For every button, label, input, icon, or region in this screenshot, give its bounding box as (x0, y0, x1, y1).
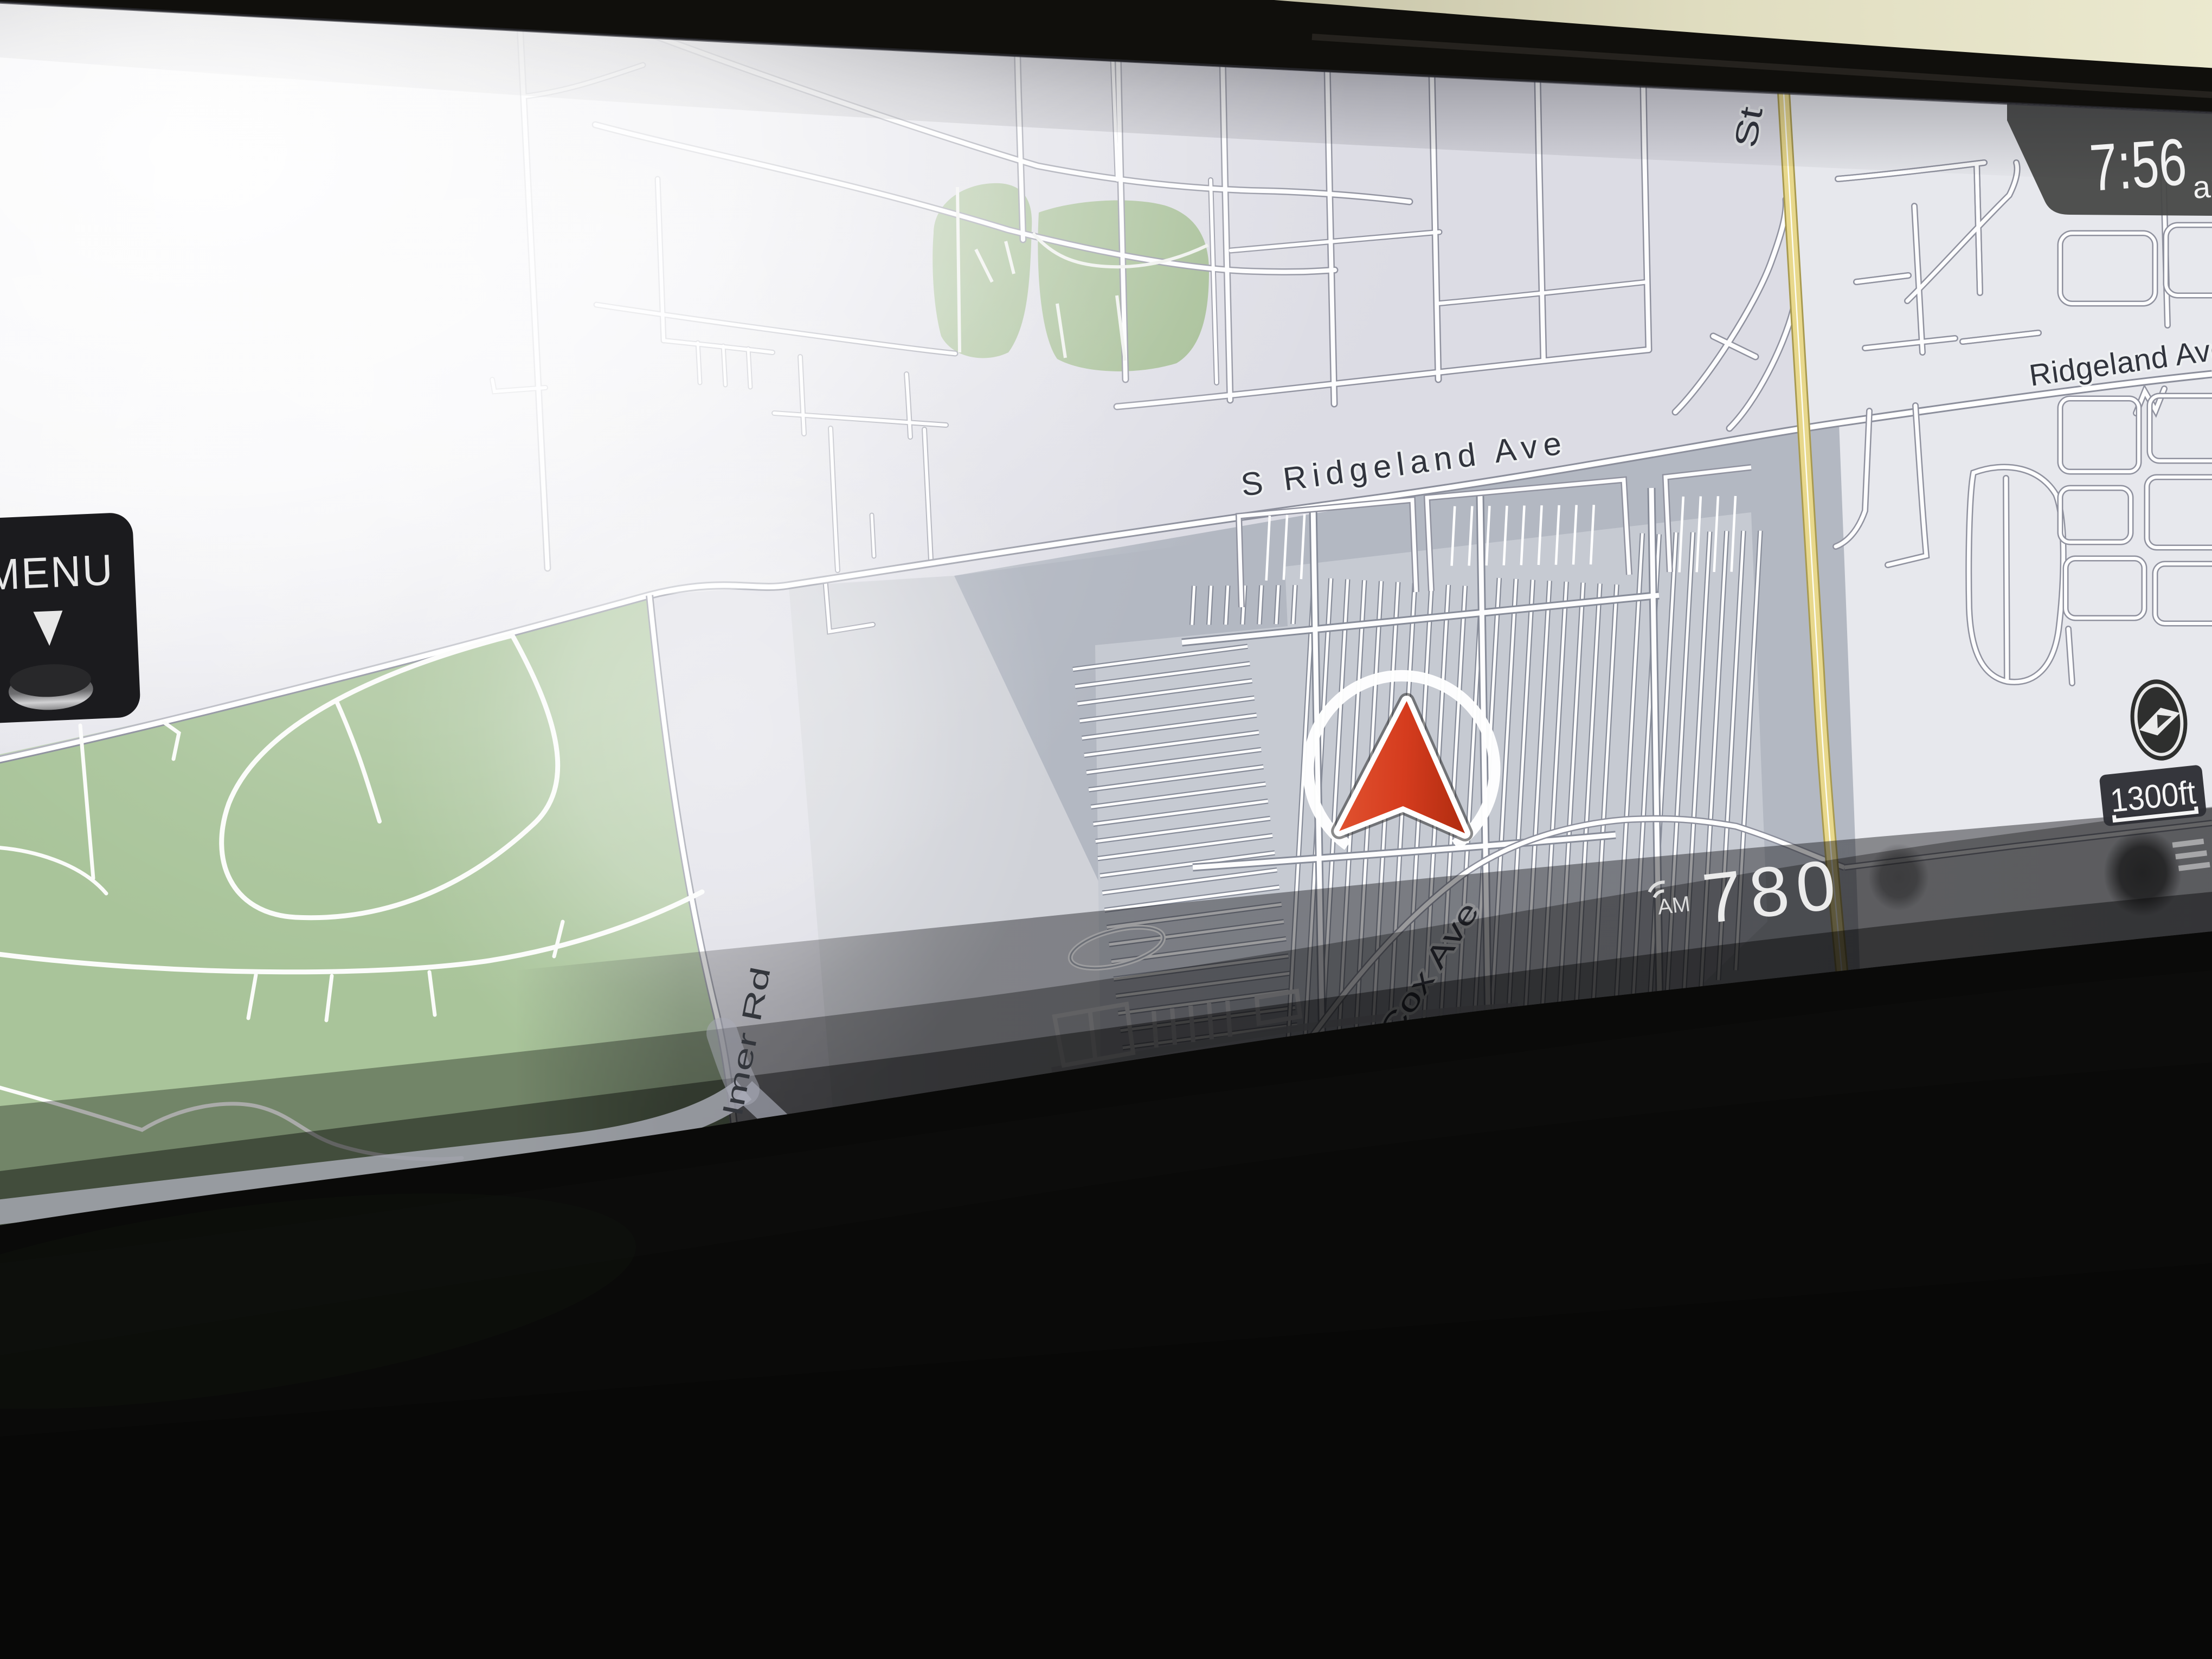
svg-text:7:56: 7:56 (2087, 125, 2189, 205)
svg-text:AM: AM (1656, 892, 1692, 919)
svg-text:am: am (2191, 168, 2212, 205)
svg-text:MENU: MENU (0, 545, 115, 599)
svg-text:780: 780 (1699, 844, 1847, 938)
